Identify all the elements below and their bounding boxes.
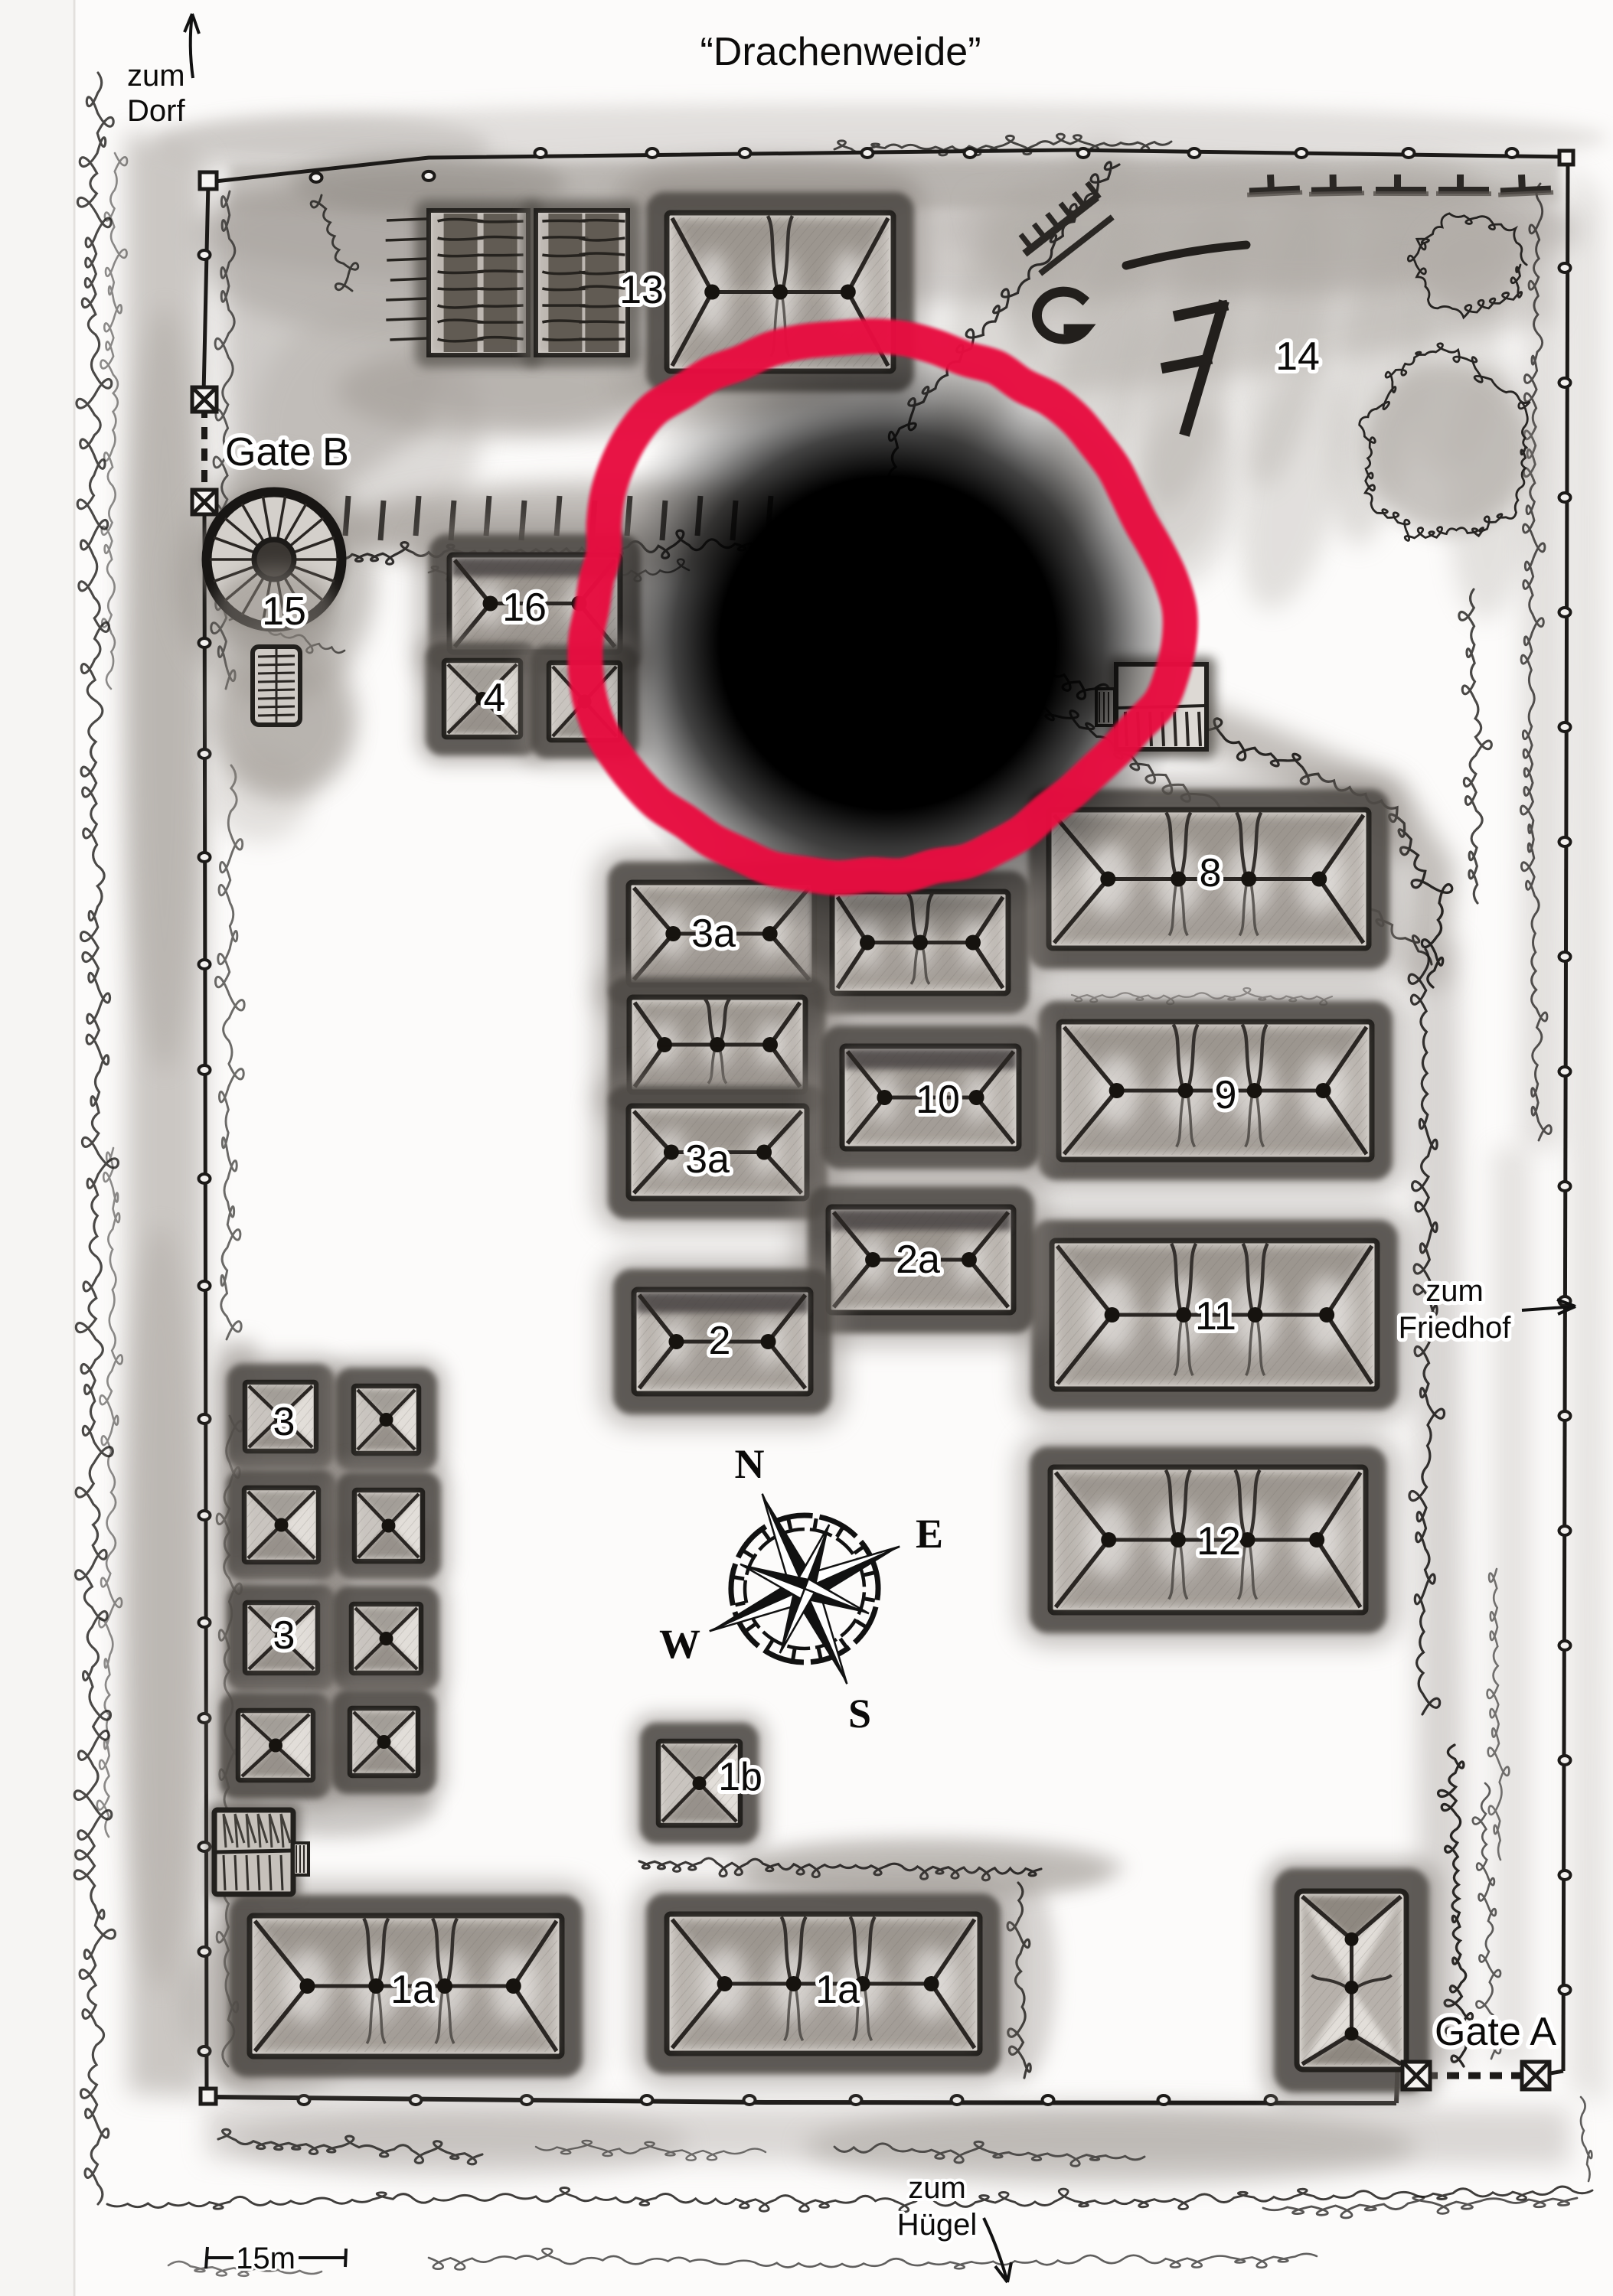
svg-text:zum: zum [1425, 1274, 1484, 1308]
svg-text:3: 3 [273, 1613, 295, 1658]
svg-text:13: 13 [619, 268, 664, 312]
svg-text:zum: zum [908, 2171, 966, 2205]
svg-text:12: 12 [1197, 1519, 1241, 1564]
svg-text:3a: 3a [685, 1137, 730, 1182]
svg-text:Gate B: Gate B [225, 430, 349, 475]
svg-text:1a: 1a [815, 1968, 860, 2012]
svg-text:zum: zum [127, 59, 185, 93]
svg-text:3a: 3a [691, 912, 736, 956]
svg-text:10: 10 [916, 1078, 960, 1122]
svg-text:8: 8 [1200, 851, 1222, 895]
svg-text:9: 9 [1215, 1073, 1237, 1117]
svg-text:1b: 1b [718, 1755, 762, 1799]
svg-text:14: 14 [1275, 334, 1320, 379]
svg-text:1a: 1a [390, 1968, 435, 2012]
svg-text:Gate A: Gate A [1435, 2010, 1556, 2054]
svg-text:N: N [735, 1441, 765, 1487]
svg-text:2a: 2a [896, 1238, 940, 1282]
svg-text:3: 3 [273, 1400, 295, 1444]
svg-text:Hügel: Hügel [897, 2208, 978, 2242]
svg-text:2: 2 [709, 1319, 731, 1363]
svg-text:Dorf: Dorf [127, 94, 185, 128]
svg-text:Friedhof: Friedhof [1399, 1311, 1512, 1345]
svg-text:15m: 15m [236, 2242, 295, 2275]
svg-text:4: 4 [484, 676, 506, 720]
svg-text:16: 16 [502, 585, 547, 630]
svg-text:E: E [916, 1511, 943, 1557]
svg-text:W: W [659, 1621, 700, 1667]
svg-text:15: 15 [262, 589, 306, 634]
svg-text:11: 11 [1195, 1294, 1236, 1339]
svg-text:S: S [848, 1691, 871, 1737]
svg-text:“Drachenweide”: “Drachenweide” [700, 30, 981, 74]
